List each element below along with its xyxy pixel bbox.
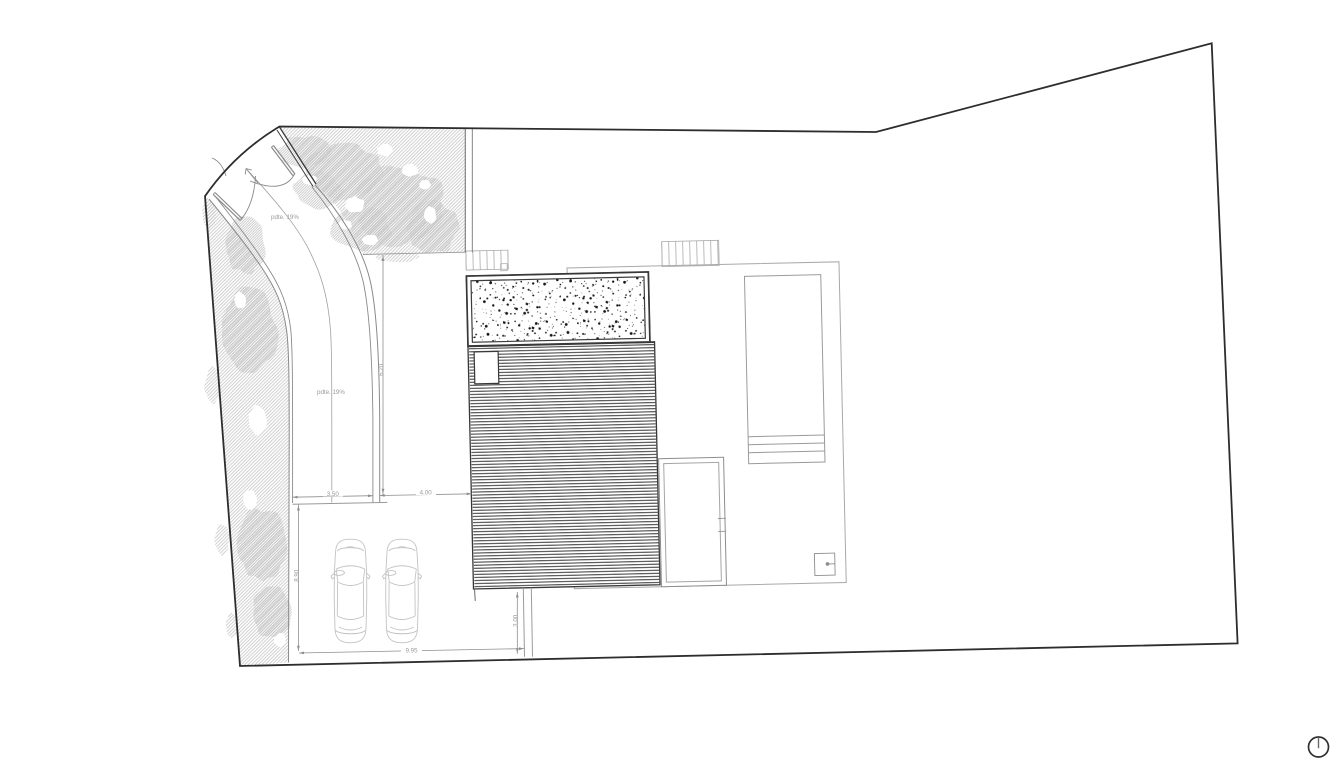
svg-text:4.00: 4.00 bbox=[420, 490, 433, 497]
svg-text:3.00: 3.00 bbox=[512, 614, 519, 627]
svg-text:pdte. 19%: pdte. 19% bbox=[317, 389, 345, 396]
svg-text:3.50: 3.50 bbox=[327, 491, 340, 498]
svg-text:9.95: 9.95 bbox=[405, 648, 418, 655]
svg-text:8.90: 8.90 bbox=[293, 569, 300, 582]
svg-text:pdte. 19%: pdte. 19% bbox=[271, 214, 299, 221]
svg-text:6.20: 6.20 bbox=[378, 363, 385, 376]
